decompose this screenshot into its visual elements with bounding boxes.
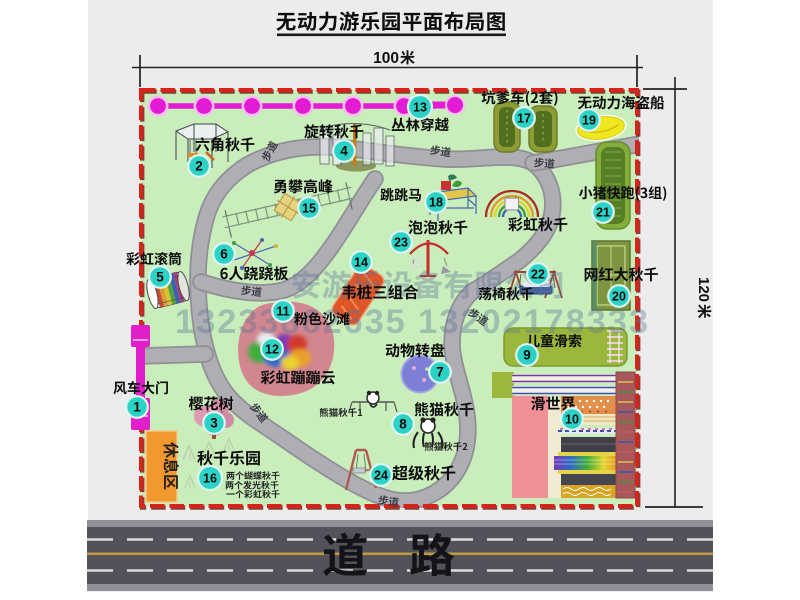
svg-text:10: 10 [565, 412, 579, 426]
svg-text:16: 16 [203, 471, 217, 485]
svg-text:2: 2 [195, 159, 203, 174]
svg-text:4: 4 [340, 144, 348, 159]
svg-text:1: 1 [133, 400, 141, 415]
svg-text:23: 23 [394, 235, 408, 249]
svg-text:9: 9 [523, 348, 531, 363]
svg-text:15: 15 [302, 201, 316, 215]
svg-text:7: 7 [436, 365, 444, 380]
svg-text:100: 100 [373, 50, 399, 67]
svg-text:12: 12 [265, 342, 279, 356]
svg-text:6: 6 [220, 247, 228, 262]
svg-text:20: 20 [612, 289, 626, 303]
svg-text:19: 19 [582, 113, 596, 127]
svg-text:14: 14 [354, 255, 368, 269]
svg-text:8: 8 [399, 417, 407, 432]
svg-text:21: 21 [596, 205, 610, 219]
svg-text:5: 5 [156, 270, 164, 285]
svg-text:17: 17 [517, 111, 531, 125]
svg-text:24: 24 [374, 468, 388, 482]
svg-text:13: 13 [413, 100, 427, 114]
svg-text:120: 120 [695, 277, 712, 302]
svg-text:11: 11 [276, 304, 289, 318]
svg-text:3: 3 [210, 416, 218, 431]
svg-text:22: 22 [531, 267, 545, 281]
svg-text:18: 18 [429, 195, 443, 209]
